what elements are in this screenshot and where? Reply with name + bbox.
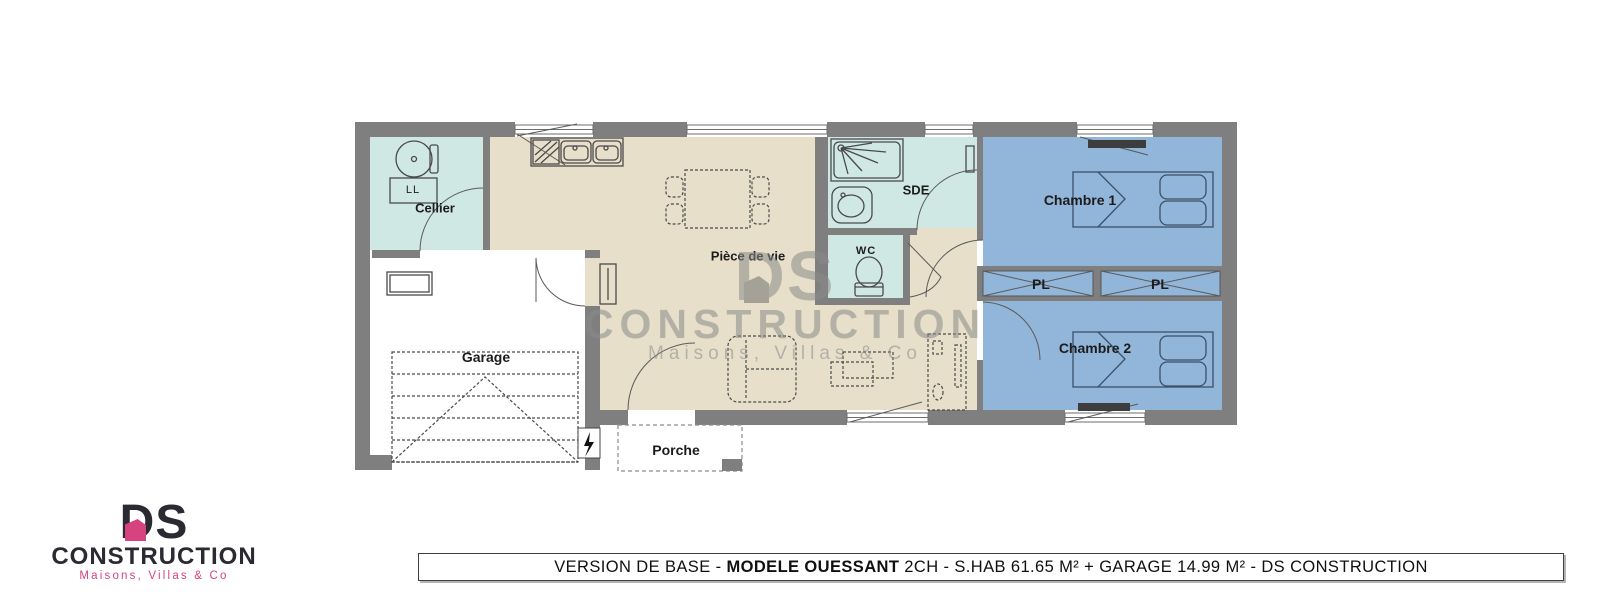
title-suffix: 2CH - S.HAB 61.65 M² + GARAGE 14.99 M² -… [899,558,1427,577]
label-pl-2: PL [1151,276,1169,292]
label-washer-ll: LL [406,184,420,196]
label-piece-de-vie: Pièce de vie [711,249,785,264]
logo-brand: DS [38,500,270,546]
title-prefix: VERSION DE BASE - [554,558,726,577]
logo-tagline: Maisons, Villas & Co [38,569,270,584]
porch-post [722,459,742,471]
room-cellier [370,137,483,250]
floorplan-sheet: Cellier LL Pièce de vie SDE WC Chambre 1… [0,0,1600,600]
label-porche: Porche [652,442,699,458]
closets-pl [977,266,1222,301]
label-cellier: Cellier [415,201,455,216]
label-wc: WC [856,245,876,257]
label-sde: SDE [903,183,930,198]
logo-name: CONSTRUCTION [38,546,270,567]
label-chambre1: Chambre 1 [1044,192,1116,208]
title-model: MODELE OUESSANT [726,558,899,577]
label-garage: Garage [462,349,510,365]
electrical-panel [578,428,600,458]
radiator [1078,403,1130,411]
label-pl-1: PL [1032,276,1050,292]
title-bar: VERSION DE BASE - MODELE OUESSANT 2CH - … [418,553,1564,581]
company-logo: DS CONSTRUCTION Maisons, Villas & Co [38,500,270,584]
label-chambre2: Chambre 2 [1059,340,1131,356]
radiator [1088,140,1146,148]
